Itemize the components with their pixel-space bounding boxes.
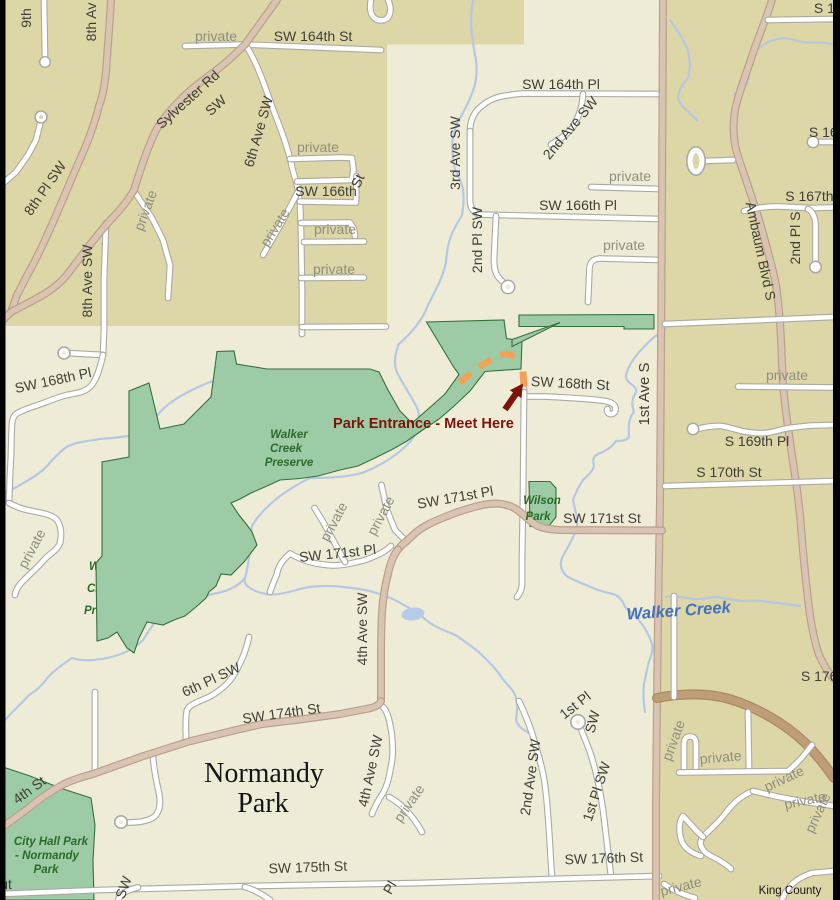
svg-text:SW 171st St: SW 171st St <box>563 510 641 526</box>
svg-text:S 167th St: S 167th St <box>785 188 840 204</box>
svg-text:private: private <box>766 367 808 383</box>
svg-text:2nd Pl SW: 2nd Pl SW <box>469 206 485 273</box>
svg-text:Park: Park <box>34 864 60 876</box>
svg-text:9th: 9th <box>18 8 34 27</box>
svg-text:private: private <box>297 139 339 155</box>
svg-text:SW 166th Pl: SW 166th Pl <box>539 197 617 213</box>
svg-text:Creek: Creek <box>270 443 303 455</box>
svg-text:private: private <box>313 261 355 277</box>
svg-text:1st Ave S: 1st Ave S <box>636 362 653 425</box>
svg-text:SW 166th: SW 166th <box>295 183 356 199</box>
svg-text:Walker: Walker <box>270 429 308 441</box>
svg-text:SW 175th St: SW 175th St <box>268 858 347 877</box>
svg-text:King County: King County <box>759 885 822 897</box>
svg-text:3rd Ave SW: 3rd Ave SW <box>447 115 463 189</box>
svg-text:private: private <box>609 168 651 184</box>
svg-text:private: private <box>314 221 356 237</box>
svg-text:SW 176th St: SW 176th St <box>564 849 643 868</box>
svg-text:Park: Park <box>526 511 552 523</box>
svg-text:2nd Pl S: 2nd Pl S <box>787 212 803 265</box>
svg-text:4th Ave SW: 4th Ave SW <box>354 592 370 666</box>
svg-text:S 169th Pl: S 169th Pl <box>725 433 790 449</box>
svg-text:Preserve: Preserve <box>265 457 314 469</box>
svg-text:Park Entrance - Meet Here: Park Entrance - Meet Here <box>333 416 514 432</box>
svg-text:S 170th St: S 170th St <box>696 464 761 480</box>
svg-text:private: private <box>195 28 237 44</box>
svg-text:City Hall Park: City Hall Park <box>14 836 89 848</box>
svg-text:- Normandy: - Normandy <box>15 850 80 862</box>
svg-text:Park: Park <box>237 788 288 819</box>
svg-text:8th Av: 8th Av <box>83 3 99 42</box>
svg-text:private: private <box>603 237 645 253</box>
svg-text:8th Ave SW: 8th Ave SW <box>79 244 95 318</box>
svg-text:Wilson: Wilson <box>523 495 561 507</box>
svg-text:SW 164th St: SW 164th St <box>274 28 353 44</box>
svg-text:SW 164th Pl: SW 164th Pl <box>522 76 600 92</box>
svg-text:Normandy: Normandy <box>204 758 324 789</box>
